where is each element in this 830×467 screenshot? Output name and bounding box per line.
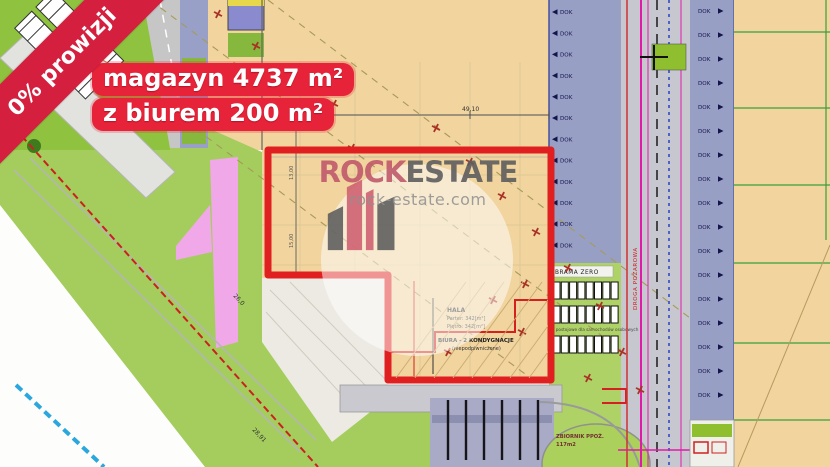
tank-label: ZBIORNIK PPOŻ. — [556, 433, 604, 440]
fire-road-label: DROGA POŻAROWA — [632, 247, 639, 310]
svg-text:DOK: DOK — [560, 222, 573, 228]
dock-strip-right — [690, 0, 734, 420]
offer-badge: magazyn 4737 m² z biurem 200 m² — [92, 63, 354, 133]
svg-text:DOK: DOK — [698, 57, 711, 63]
parking-note: m. postojowe dla samochodów osobowych — [549, 327, 639, 332]
svg-text:DOK: DOK — [560, 180, 573, 186]
svg-text:DOK: DOK — [698, 153, 711, 159]
svg-text:DOK: DOK — [698, 321, 711, 327]
svg-text:DOK: DOK — [560, 137, 573, 143]
svg-text:DOK: DOK — [560, 159, 573, 165]
brand-part-rock: ROCK — [319, 155, 406, 189]
office-line2: (niepodpiwniczone) — [452, 346, 501, 352]
dim-v1: 13,00 — [289, 166, 295, 180]
svg-text:DOK: DOK — [698, 369, 711, 375]
tank-area-label: 117m2 — [556, 442, 576, 448]
watermark: ROCKESTATE rock-estate.com — [318, 160, 518, 209]
dim-v2: 15,00 — [289, 234, 295, 248]
svg-text:DOK: DOK — [698, 249, 711, 255]
svg-text:DOK: DOK — [698, 177, 711, 183]
svg-text:DOK: DOK — [560, 31, 573, 37]
utility-block — [690, 420, 734, 467]
svg-text:DOK: DOK — [698, 393, 711, 399]
badge-line-warehouse: magazyn 4737 m² — [92, 63, 354, 96]
svg-text:DOK: DOK — [698, 345, 711, 351]
site-plan-advert: 26,0 28,91 36,00 49,10 84,00 13,00 15,00 — [0, 0, 830, 467]
svg-text:DOK: DOK — [560, 10, 573, 16]
badge-line-office: z biurem 200 m² — [92, 98, 334, 131]
right-warehouse — [734, 0, 830, 467]
svg-text:DOK: DOK — [698, 105, 711, 111]
svg-text:DOK: DOK — [698, 9, 711, 15]
svg-text:DOK: DOK — [698, 297, 711, 303]
svg-text:DOK: DOK — [560, 53, 573, 59]
watermark-brand: ROCKESTATE — [318, 158, 518, 187]
svg-text:DOK: DOK — [698, 225, 711, 231]
dim-49: 49,10 — [462, 106, 479, 113]
svg-text:DOK: DOK — [560, 243, 573, 249]
brand-part-estate: ESTATE — [405, 155, 517, 189]
svg-text:DOK: DOK — [560, 95, 573, 101]
svg-text:DOK: DOK — [560, 201, 573, 207]
svg-text:DOK: DOK — [698, 273, 711, 279]
watermark-domain: rock-estate.com — [318, 190, 518, 209]
svg-text:DOK: DOK — [560, 74, 573, 80]
svg-text:DOK: DOK — [698, 129, 711, 135]
svg-text:DOK: DOK — [698, 33, 711, 39]
svg-text:DOK: DOK — [560, 116, 573, 122]
svg-text:DOK: DOK — [698, 201, 711, 207]
gate-label: BRAMA ZERO — [555, 270, 599, 276]
svg-text:DOK: DOK — [698, 81, 711, 87]
